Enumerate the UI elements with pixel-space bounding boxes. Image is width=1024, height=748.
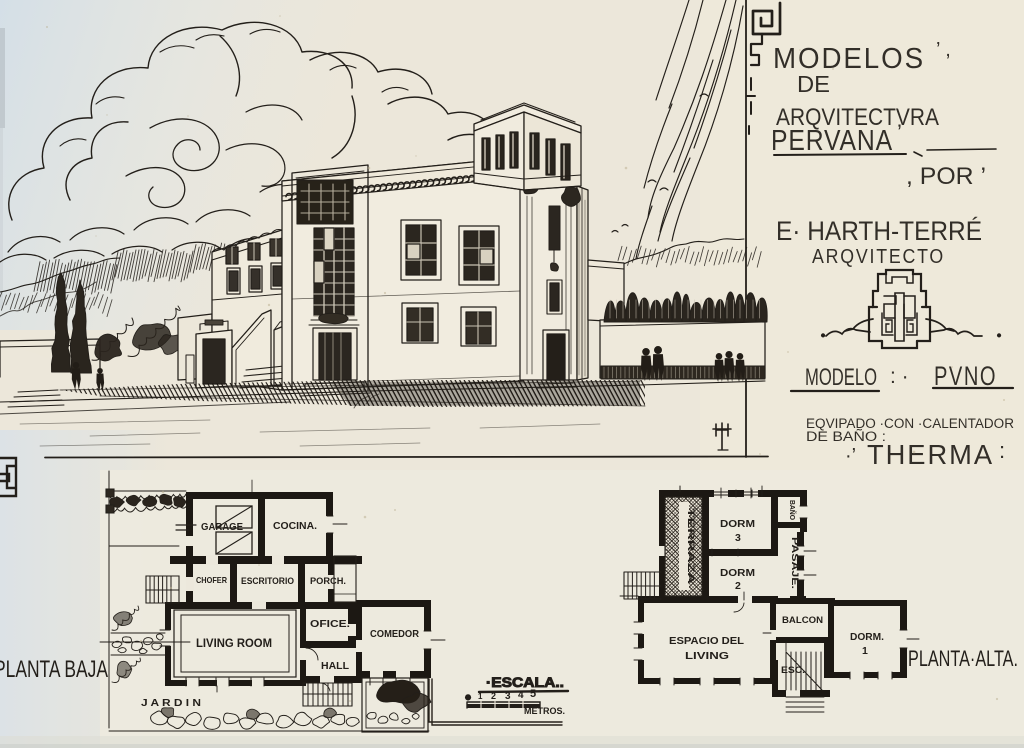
svg-text:DORM.: DORM. — [850, 632, 884, 643]
svg-text:MODELO: MODELO — [805, 364, 877, 391]
svg-text:5: 5 — [530, 688, 536, 700]
svg-text:’: ’ — [897, 120, 902, 145]
svg-text:’ ,: ’ , — [936, 39, 951, 61]
svg-text:BALCON: BALCON — [782, 615, 823, 626]
svg-text:PERVANA: PERVANA — [771, 125, 893, 157]
svg-text:DORM: DORM — [720, 519, 755, 530]
svg-text:ESCRITORIO: ESCRITORIO — [241, 576, 294, 587]
svg-text:PASAJE.: PASAJE. — [790, 537, 800, 589]
svg-text:DE: DE — [797, 71, 830, 97]
svg-text:E· HARTH-TERRÉ: E· HARTH-TERRÉ — [776, 216, 982, 246]
svg-text:CHOFER: CHOFER — [196, 575, 227, 585]
svg-text:COMEDOR: COMEDOR — [370, 628, 419, 640]
svg-text:J A R D I N: J A R D I N — [141, 698, 201, 709]
svg-text:2: 2 — [735, 580, 741, 592]
svg-text:PLANTA BAJA: PLANTA BAJA — [0, 656, 108, 683]
svg-text:OFICE.: OFICE. — [310, 618, 350, 630]
svg-text:TERRAZA: TERRAZA — [685, 508, 696, 584]
svg-text:DORM: DORM — [720, 568, 755, 579]
svg-text:GARAGE: GARAGE — [201, 521, 243, 533]
svg-text:3: 3 — [505, 691, 511, 702]
svg-text:PLANTA·ALTA.: PLANTA·ALTA. — [908, 646, 1018, 671]
svg-text:·ESCALA..: ·ESCALA.. — [486, 674, 564, 690]
svg-text:2: 2 — [491, 691, 496, 701]
svg-text:: ·: : · — [890, 365, 909, 388]
svg-text:COCINA.: COCINA. — [273, 520, 317, 532]
svg-text:1: 1 — [478, 692, 483, 701]
svg-text:MODELOS: MODELOS — [773, 43, 925, 75]
svg-text::: : — [999, 438, 1005, 463]
svg-text:1: 1 — [862, 645, 868, 657]
svg-text:METROS.: METROS. — [524, 706, 565, 717]
svg-text:BAÑO: BAÑO — [788, 500, 797, 521]
svg-text:LIVING ROOM: LIVING ROOM — [196, 638, 272, 650]
svg-text:3: 3 — [735, 532, 741, 544]
svg-text:PVNO: PVNO — [934, 361, 997, 391]
svg-text:HALL: HALL — [321, 660, 350, 672]
svg-text:, POR ’: , POR ’ — [906, 163, 986, 190]
svg-text:ESC.: ESC. — [781, 665, 805, 676]
svg-text:THERMA: THERMA — [867, 439, 994, 470]
svg-text:ESPACIO DEL: ESPACIO DEL — [669, 635, 745, 647]
svg-text:PORCH.: PORCH. — [310, 576, 346, 587]
svg-text:ARQVITECTO: ARQVITECTO — [812, 246, 945, 268]
svg-text:4: 4 — [518, 690, 524, 701]
svg-text:·’: ·’ — [845, 445, 856, 467]
svg-text:LIVING: LIVING — [685, 650, 729, 662]
